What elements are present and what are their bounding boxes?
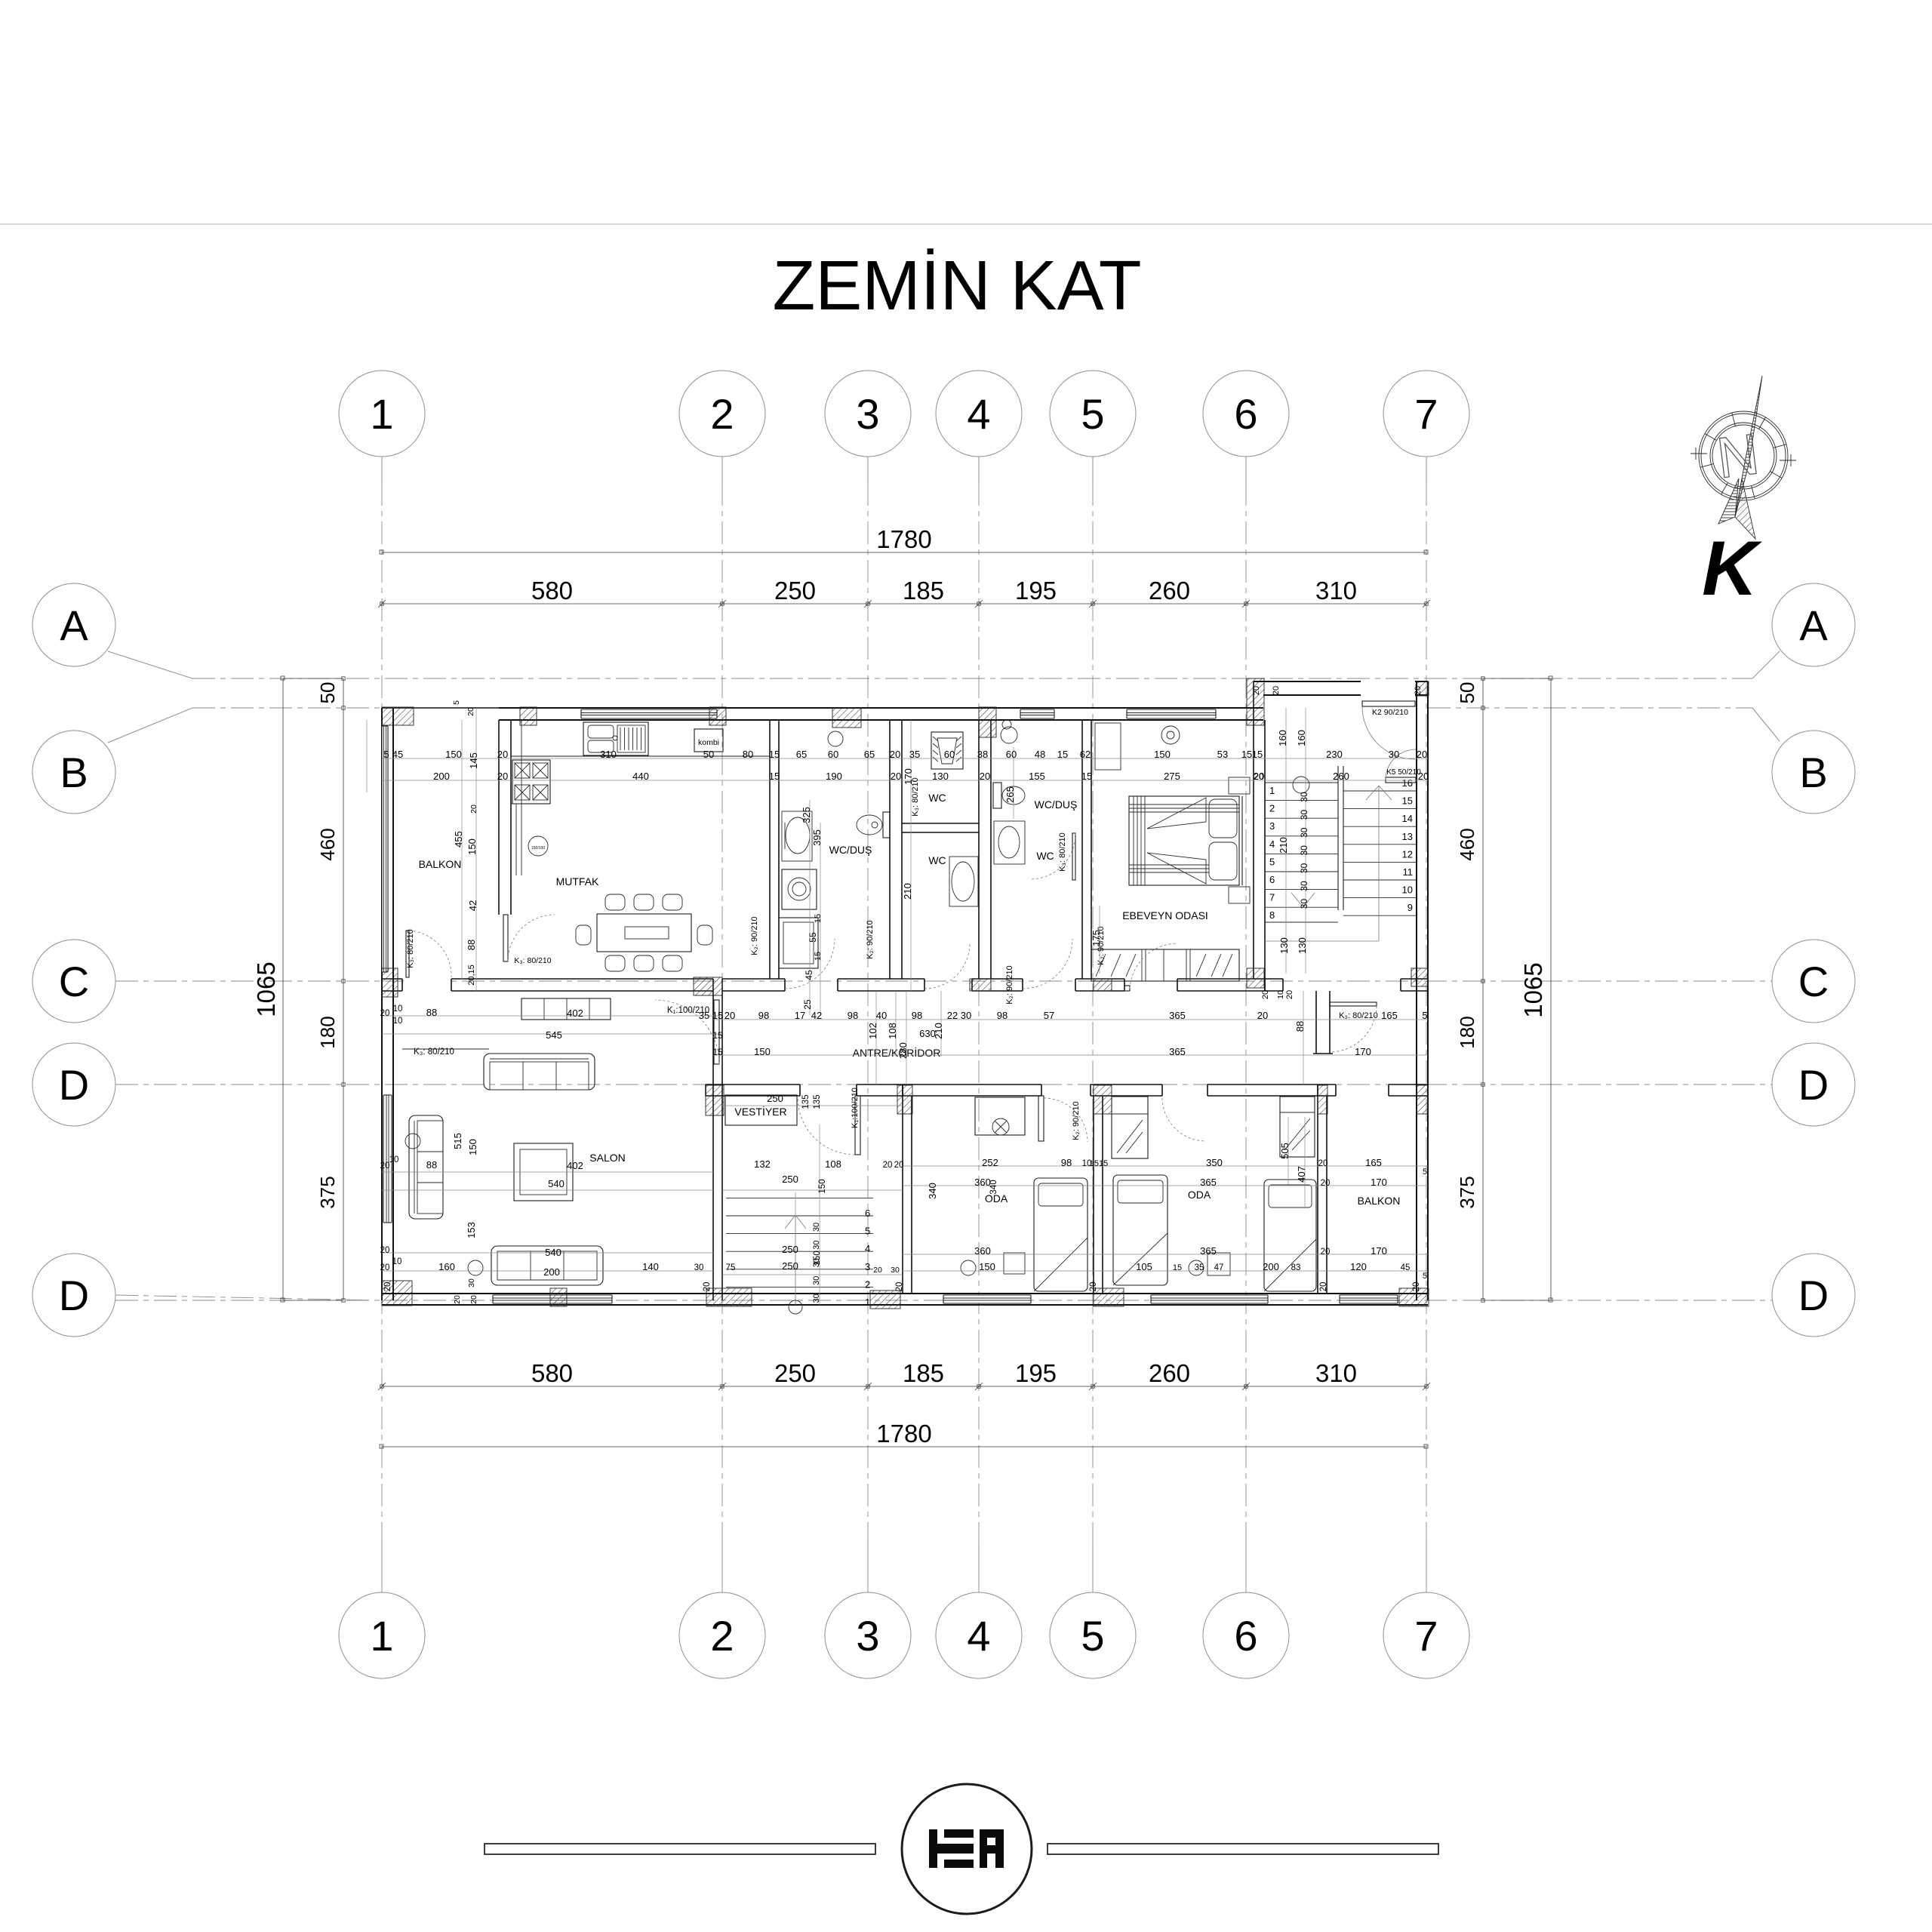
svg-text:30: 30: [1299, 863, 1309, 873]
svg-text:30: 30: [1299, 827, 1309, 838]
svg-text:5: 5: [1269, 856, 1275, 867]
svg-text:35: 35: [909, 749, 920, 760]
svg-text:160: 160: [1277, 730, 1288, 746]
svg-text:40: 40: [876, 1010, 887, 1021]
svg-text:K₂: 90/210: K₂: 90/210: [1005, 965, 1014, 1004]
svg-text:C: C: [1798, 958, 1829, 1005]
svg-text:130: 130: [1278, 937, 1290, 954]
svg-text:30: 30: [1299, 792, 1309, 802]
svg-text:1065: 1065: [1519, 962, 1547, 1017]
svg-text:150: 150: [754, 1046, 771, 1057]
svg-text:11: 11: [1403, 866, 1414, 878]
svg-text:20: 20: [453, 1295, 462, 1304]
svg-text:20: 20: [469, 1295, 478, 1304]
svg-text:150: 150: [979, 1261, 995, 1272]
svg-text:6: 6: [1234, 390, 1257, 438]
svg-text:48: 48: [1035, 749, 1045, 760]
svg-text:75: 75: [726, 1263, 736, 1272]
svg-text:3: 3: [1269, 820, 1275, 832]
svg-text:D: D: [59, 1061, 89, 1109]
svg-text:105: 105: [1136, 1261, 1152, 1272]
svg-text:2: 2: [865, 1278, 870, 1290]
svg-text:210: 210: [902, 883, 913, 900]
svg-text:3: 3: [856, 390, 879, 438]
svg-text:185: 185: [903, 577, 944, 605]
svg-text:150: 150: [818, 1179, 827, 1193]
svg-text:190: 190: [826, 771, 842, 782]
svg-text:ZEMİN KAT: ZEMİN KAT: [772, 246, 1141, 325]
svg-text:20: 20: [1318, 1159, 1328, 1168]
svg-text:6: 6: [865, 1207, 870, 1219]
svg-text:580: 580: [531, 577, 573, 605]
svg-text:200: 200: [543, 1266, 560, 1278]
svg-text:20: 20: [890, 749, 900, 760]
svg-text:20: 20: [1417, 749, 1427, 760]
svg-text:7: 7: [1269, 892, 1275, 903]
svg-text:440: 440: [632, 771, 649, 782]
svg-text:20: 20: [1321, 1247, 1331, 1257]
svg-text:102: 102: [867, 1023, 878, 1039]
svg-text:WC: WC: [928, 792, 946, 804]
svg-text:580: 580: [531, 1359, 573, 1387]
svg-text:3: 3: [865, 1261, 870, 1272]
svg-text:30: 30: [812, 1294, 821, 1303]
svg-text:365: 365: [1200, 1177, 1217, 1188]
svg-text:160: 160: [438, 1261, 455, 1272]
svg-text:A: A: [60, 601, 88, 649]
svg-text:3: 3: [856, 1612, 879, 1660]
svg-text:30: 30: [891, 1266, 900, 1275]
svg-text:65: 65: [796, 749, 807, 760]
svg-text:98: 98: [758, 1010, 769, 1021]
svg-text:365: 365: [1169, 1010, 1186, 1021]
svg-text:60: 60: [828, 749, 838, 760]
svg-text:WC/DUŞ: WC/DUŞ: [829, 844, 872, 856]
svg-text:145: 145: [468, 752, 479, 769]
svg-text:1515: 1515: [1090, 1159, 1108, 1168]
svg-text:250: 250: [774, 1359, 816, 1387]
svg-text:K₃: 80/210: K₃: 80/210: [406, 929, 415, 968]
svg-text:20: 20: [883, 1161, 893, 1170]
svg-text:132: 132: [754, 1158, 771, 1170]
svg-text:88: 88: [1294, 1021, 1306, 1032]
svg-text:WC: WC: [928, 854, 946, 866]
svg-text:540: 540: [545, 1247, 561, 1258]
svg-text:170: 170: [1371, 1177, 1387, 1188]
svg-text:EBEVEYN ODASI: EBEVEYN ODASI: [1122, 909, 1208, 921]
svg-text:250: 250: [782, 1260, 798, 1272]
svg-text:WC/DUŞ: WC/DUŞ: [1035, 798, 1078, 811]
svg-text:20,15: 20,15: [467, 964, 476, 986]
svg-text:20: 20: [380, 1161, 390, 1171]
svg-text:20: 20: [380, 1246, 390, 1255]
svg-text:1: 1: [370, 1612, 393, 1660]
svg-text:20: 20: [703, 1282, 712, 1292]
svg-text:1: 1: [1269, 785, 1275, 796]
svg-text:505: 505: [1279, 1143, 1291, 1159]
svg-text:12: 12: [1402, 848, 1413, 860]
svg-text:310: 310: [1315, 1359, 1357, 1387]
svg-text:C: C: [59, 958, 89, 1005]
svg-text:260: 260: [1333, 771, 1349, 782]
svg-text:kombi: kombi: [698, 738, 719, 747]
svg-text:9: 9: [1407, 902, 1413, 913]
svg-text:50: 50: [1456, 682, 1478, 704]
svg-text:MUTFAK: MUTFAK: [556, 875, 599, 888]
svg-text:98: 98: [1061, 1157, 1072, 1168]
svg-text:10: 10: [392, 1257, 402, 1266]
svg-text:130: 130: [1297, 937, 1308, 954]
svg-text:35: 35: [1195, 1263, 1204, 1272]
svg-text:57: 57: [1044, 1010, 1054, 1021]
svg-text:7: 7: [1414, 390, 1438, 438]
svg-text:K: K: [1702, 525, 1762, 611]
svg-text:150: 150: [445, 749, 462, 760]
svg-text:98: 98: [912, 1010, 922, 1021]
svg-text:A: A: [1799, 601, 1828, 649]
svg-text:250: 250: [782, 1174, 798, 1185]
svg-text:170: 170: [1371, 1245, 1387, 1257]
svg-text:B: B: [60, 749, 88, 796]
svg-text:15: 15: [769, 771, 780, 782]
svg-text:153: 153: [466, 1222, 477, 1238]
svg-text:2: 2: [710, 1612, 734, 1660]
svg-text:VESTİYER: VESTİYER: [734, 1105, 786, 1118]
svg-text:30: 30: [1299, 810, 1309, 820]
svg-text:402: 402: [567, 1008, 583, 1019]
svg-text:515: 515: [452, 1133, 463, 1149]
svg-text:180: 180: [1456, 1016, 1478, 1048]
svg-text:ODA: ODA: [1188, 1189, 1211, 1201]
svg-text:10: 10: [1276, 990, 1285, 999]
svg-text:BALKON: BALKON: [1358, 1195, 1401, 1207]
svg-text:15: 15: [1252, 749, 1263, 760]
svg-text:B: B: [1799, 749, 1827, 796]
svg-text:195: 195: [1015, 577, 1057, 605]
svg-text:K2 90/210: K2 90/210: [1372, 708, 1408, 717]
svg-text:135: 135: [801, 1094, 811, 1109]
svg-text:365: 365: [1200, 1245, 1217, 1257]
svg-text:5: 5: [1081, 390, 1104, 438]
svg-text:30: 30: [1389, 749, 1399, 760]
svg-text:14: 14: [1402, 813, 1413, 824]
svg-text:ANTRE/KORİDOR: ANTRE/KORİDOR: [853, 1046, 941, 1059]
svg-text:38: 38: [977, 749, 988, 760]
svg-text:120: 120: [1350, 1261, 1367, 1272]
svg-text:45: 45: [1401, 1263, 1411, 1272]
svg-text:42: 42: [811, 1010, 822, 1021]
svg-text:360: 360: [974, 1245, 991, 1257]
svg-text:15: 15: [713, 1048, 723, 1057]
svg-text:30: 30: [812, 1276, 821, 1285]
svg-text:140: 140: [642, 1261, 659, 1272]
svg-text:30: 30: [812, 1223, 821, 1232]
svg-text:10: 10: [393, 1017, 403, 1026]
svg-text:BALKON: BALKON: [419, 858, 462, 870]
svg-text:407: 407: [1296, 1166, 1307, 1183]
svg-text:275: 275: [1164, 771, 1180, 782]
svg-text:250: 250: [782, 1244, 798, 1255]
svg-text:5: 5: [1423, 1168, 1427, 1177]
svg-text:6: 6: [1234, 1612, 1257, 1660]
svg-text:45: 45: [392, 749, 403, 760]
svg-text:30: 30: [694, 1263, 704, 1272]
svg-text:200: 200: [433, 771, 450, 782]
svg-text:20: 20: [1252, 686, 1261, 695]
svg-text:455: 455: [453, 831, 464, 848]
svg-text:K5 50/210: K5 50/210: [1386, 768, 1421, 777]
svg-text:260: 260: [1149, 577, 1190, 605]
svg-text:SALON: SALON: [589, 1152, 625, 1164]
svg-text:108: 108: [887, 1023, 898, 1039]
svg-text:60: 60: [1006, 749, 1017, 760]
svg-text:460: 460: [316, 828, 339, 860]
svg-text:K₂: 90/210: K₂: 90/210: [750, 916, 759, 955]
svg-text:62: 62: [1080, 749, 1091, 760]
svg-text:30: 30: [812, 1240, 821, 1249]
svg-text:20: 20: [383, 1282, 392, 1292]
svg-text:30: 30: [961, 1010, 971, 1021]
svg-text:25: 25: [802, 999, 813, 1010]
svg-text:5: 5: [383, 749, 389, 760]
svg-text:250: 250: [774, 577, 816, 605]
svg-text:260: 260: [1149, 1359, 1190, 1387]
svg-text:15: 15: [713, 1032, 723, 1041]
svg-text:375: 375: [1456, 1176, 1478, 1208]
svg-text:4: 4: [1269, 838, 1275, 850]
svg-text:5: 5: [865, 1226, 870, 1237]
svg-text:2: 2: [710, 390, 734, 438]
svg-text:265: 265: [1004, 786, 1016, 803]
svg-text:5: 5: [1081, 1612, 1104, 1660]
svg-text:185: 185: [903, 1359, 944, 1387]
svg-text:20: 20: [1418, 771, 1429, 782]
svg-text:175: 175: [1091, 930, 1102, 946]
svg-text:4: 4: [967, 1612, 990, 1660]
svg-text:395: 395: [811, 829, 823, 846]
svg-text:170: 170: [1355, 1046, 1371, 1057]
svg-text:160: 160: [1296, 730, 1307, 746]
svg-text:200: 200: [1263, 1261, 1279, 1272]
svg-text:15: 15: [1057, 749, 1068, 760]
svg-text:5: 5: [1422, 1010, 1427, 1021]
svg-text:20: 20: [1321, 1179, 1331, 1188]
svg-text:20: 20: [724, 1010, 735, 1021]
svg-text:30: 30: [1299, 845, 1309, 856]
svg-text:1780: 1780: [876, 525, 931, 553]
svg-text:540: 540: [548, 1178, 565, 1189]
svg-text:310: 310: [1315, 577, 1357, 605]
svg-text:15: 15: [1081, 771, 1092, 782]
svg-text:360: 360: [974, 1177, 991, 1188]
svg-text:340: 340: [989, 1180, 998, 1194]
svg-text:15: 15: [769, 749, 780, 760]
svg-text:K₂: 90/210: K₂: 90/210: [1072, 1101, 1081, 1140]
svg-text:N: N: [1713, 422, 1762, 491]
svg-text:30: 30: [812, 1258, 821, 1267]
svg-text:65: 65: [864, 749, 875, 760]
svg-text:20: 20: [1414, 686, 1423, 695]
svg-text:20: 20: [1319, 1282, 1328, 1292]
svg-text:83: 83: [1291, 1263, 1301, 1272]
svg-text:155: 155: [1029, 771, 1045, 782]
svg-text:340: 340: [927, 1183, 938, 1199]
svg-text:D: D: [1798, 1272, 1829, 1319]
svg-text:88: 88: [426, 1007, 437, 1018]
svg-text:20: 20: [466, 707, 475, 716]
svg-text:42: 42: [467, 900, 478, 911]
svg-text:D: D: [1798, 1061, 1829, 1109]
svg-text:195: 195: [1015, 1359, 1057, 1387]
svg-text:365: 365: [1169, 1046, 1186, 1057]
svg-text:252: 252: [982, 1157, 998, 1168]
svg-text:K₃: 80/210: K₃: 80/210: [514, 956, 551, 965]
svg-text:53: 53: [1217, 749, 1228, 760]
svg-text:17: 17: [795, 1010, 805, 1021]
svg-text:20: 20: [1254, 773, 1264, 782]
svg-text:15: 15: [1402, 795, 1413, 807]
svg-text:20: 20: [891, 771, 901, 782]
svg-text:20: 20: [1412, 1282, 1421, 1292]
svg-text:7: 7: [1414, 1612, 1438, 1660]
svg-text:15: 15: [814, 914, 823, 923]
svg-text:D: D: [59, 1272, 89, 1319]
svg-text:150: 150: [466, 838, 478, 855]
svg-text:165: 165: [1365, 1157, 1382, 1168]
svg-text:88: 88: [426, 1159, 437, 1171]
svg-text:20: 20: [469, 804, 478, 814]
svg-text:20: 20: [497, 771, 508, 782]
svg-text:55: 55: [808, 932, 818, 943]
svg-text:210: 210: [933, 1023, 944, 1039]
svg-text:165: 165: [1381, 1010, 1398, 1021]
svg-text:375: 375: [316, 1176, 339, 1208]
svg-text:20: 20: [380, 1263, 390, 1272]
svg-text:20: 20: [497, 749, 508, 760]
svg-text:402: 402: [567, 1160, 583, 1171]
svg-text:4: 4: [967, 390, 990, 438]
svg-text:30: 30: [1299, 881, 1309, 891]
svg-text:30: 30: [1299, 899, 1309, 909]
svg-text:210: 210: [1278, 837, 1289, 854]
svg-text:13: 13: [1402, 831, 1413, 842]
svg-text:20: 20: [1272, 686, 1281, 695]
svg-text:10: 10: [393, 1004, 403, 1014]
svg-text:20: 20: [1285, 990, 1294, 999]
svg-text:45: 45: [804, 970, 814, 980]
svg-text:150/100: 150/100: [531, 846, 545, 851]
svg-text:150: 150: [467, 1139, 478, 1155]
svg-text:2: 2: [1269, 803, 1275, 814]
svg-text:10: 10: [389, 1155, 399, 1164]
svg-text:6: 6: [1269, 874, 1275, 885]
svg-text:98: 98: [997, 1010, 1008, 1021]
svg-text:10: 10: [1402, 884, 1413, 896]
svg-text:20: 20: [895, 1282, 904, 1292]
svg-text:K₃: 80/210: K₃: 80/210: [1339, 1011, 1378, 1020]
svg-text:460: 460: [1456, 828, 1478, 860]
svg-text:35: 35: [699, 1010, 709, 1021]
svg-text:K₃: 80/210: K₃: 80/210: [911, 777, 920, 817]
svg-text:8: 8: [1269, 909, 1275, 921]
svg-text:20: 20: [980, 771, 990, 782]
svg-text:50: 50: [703, 749, 714, 760]
svg-text:20: 20: [873, 1266, 882, 1275]
svg-text:4: 4: [865, 1243, 870, 1254]
svg-text:310: 310: [600, 749, 617, 760]
svg-text:K₂: 90/210: K₂: 90/210: [866, 920, 875, 958]
svg-text:15: 15: [1241, 749, 1252, 760]
svg-text:250: 250: [767, 1093, 783, 1104]
svg-text:180: 180: [316, 1016, 339, 1048]
svg-text:88: 88: [466, 940, 477, 950]
svg-text:15: 15: [1173, 1263, 1182, 1272]
svg-text:150: 150: [1154, 749, 1171, 760]
svg-text:325: 325: [801, 807, 812, 823]
svg-text:WC: WC: [1036, 850, 1054, 862]
svg-text:15: 15: [814, 952, 823, 961]
svg-text:15: 15: [712, 1010, 723, 1021]
svg-text:280: 280: [897, 1042, 909, 1059]
svg-text:60: 60: [944, 749, 955, 760]
svg-text:545: 545: [546, 1029, 562, 1041]
svg-text:350: 350: [1206, 1157, 1223, 1168]
svg-text:20: 20: [1257, 1010, 1268, 1021]
svg-text:22: 22: [947, 1010, 958, 1021]
svg-text:20: 20: [1089, 1282, 1098, 1292]
svg-text:230: 230: [1326, 749, 1343, 760]
svg-text:1: 1: [370, 390, 393, 438]
svg-text:20: 20: [1261, 990, 1270, 999]
svg-text:98: 98: [848, 1010, 858, 1021]
svg-text:135: 135: [813, 1094, 822, 1109]
svg-text:20: 20: [380, 1009, 390, 1018]
svg-text:5: 5: [452, 700, 461, 705]
svg-text:20: 20: [894, 1161, 904, 1170]
svg-text:1065: 1065: [252, 961, 280, 1017]
svg-text:K₁:100/210: K₁:100/210: [851, 1088, 860, 1128]
svg-text:30: 30: [467, 1278, 476, 1287]
svg-text:108: 108: [825, 1158, 841, 1170]
svg-text:47: 47: [1214, 1263, 1224, 1272]
svg-text:K₃: 80/210: K₃: 80/210: [1058, 832, 1067, 872]
svg-text:130: 130: [932, 771, 949, 782]
svg-text:1: 1: [865, 1297, 870, 1308]
svg-text:50: 50: [316, 682, 339, 704]
svg-text:1780: 1780: [876, 1420, 931, 1447]
svg-text:5: 5: [1423, 1272, 1427, 1281]
svg-text:80: 80: [743, 749, 753, 760]
